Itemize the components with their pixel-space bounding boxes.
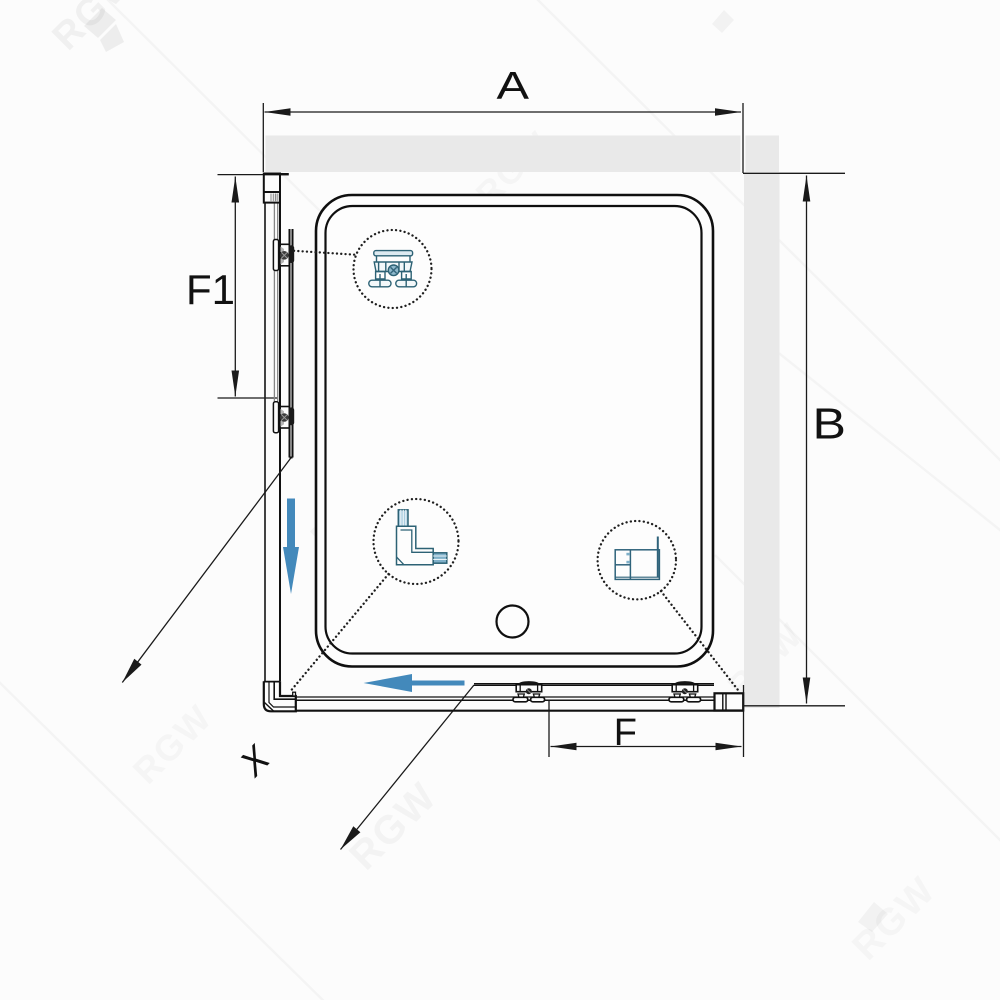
svg-text:A: A — [497, 65, 530, 108]
svg-text:X: X — [231, 737, 279, 785]
svg-text:F: F — [614, 712, 637, 754]
svg-text:F1: F1 — [186, 266, 235, 313]
svg-text:B: B — [813, 398, 846, 447]
svg-text:RGW: RGW — [125, 696, 220, 791]
svg-text:RGW: RGW — [845, 869, 945, 969]
svg-text:RGW: RGW — [341, 774, 445, 878]
